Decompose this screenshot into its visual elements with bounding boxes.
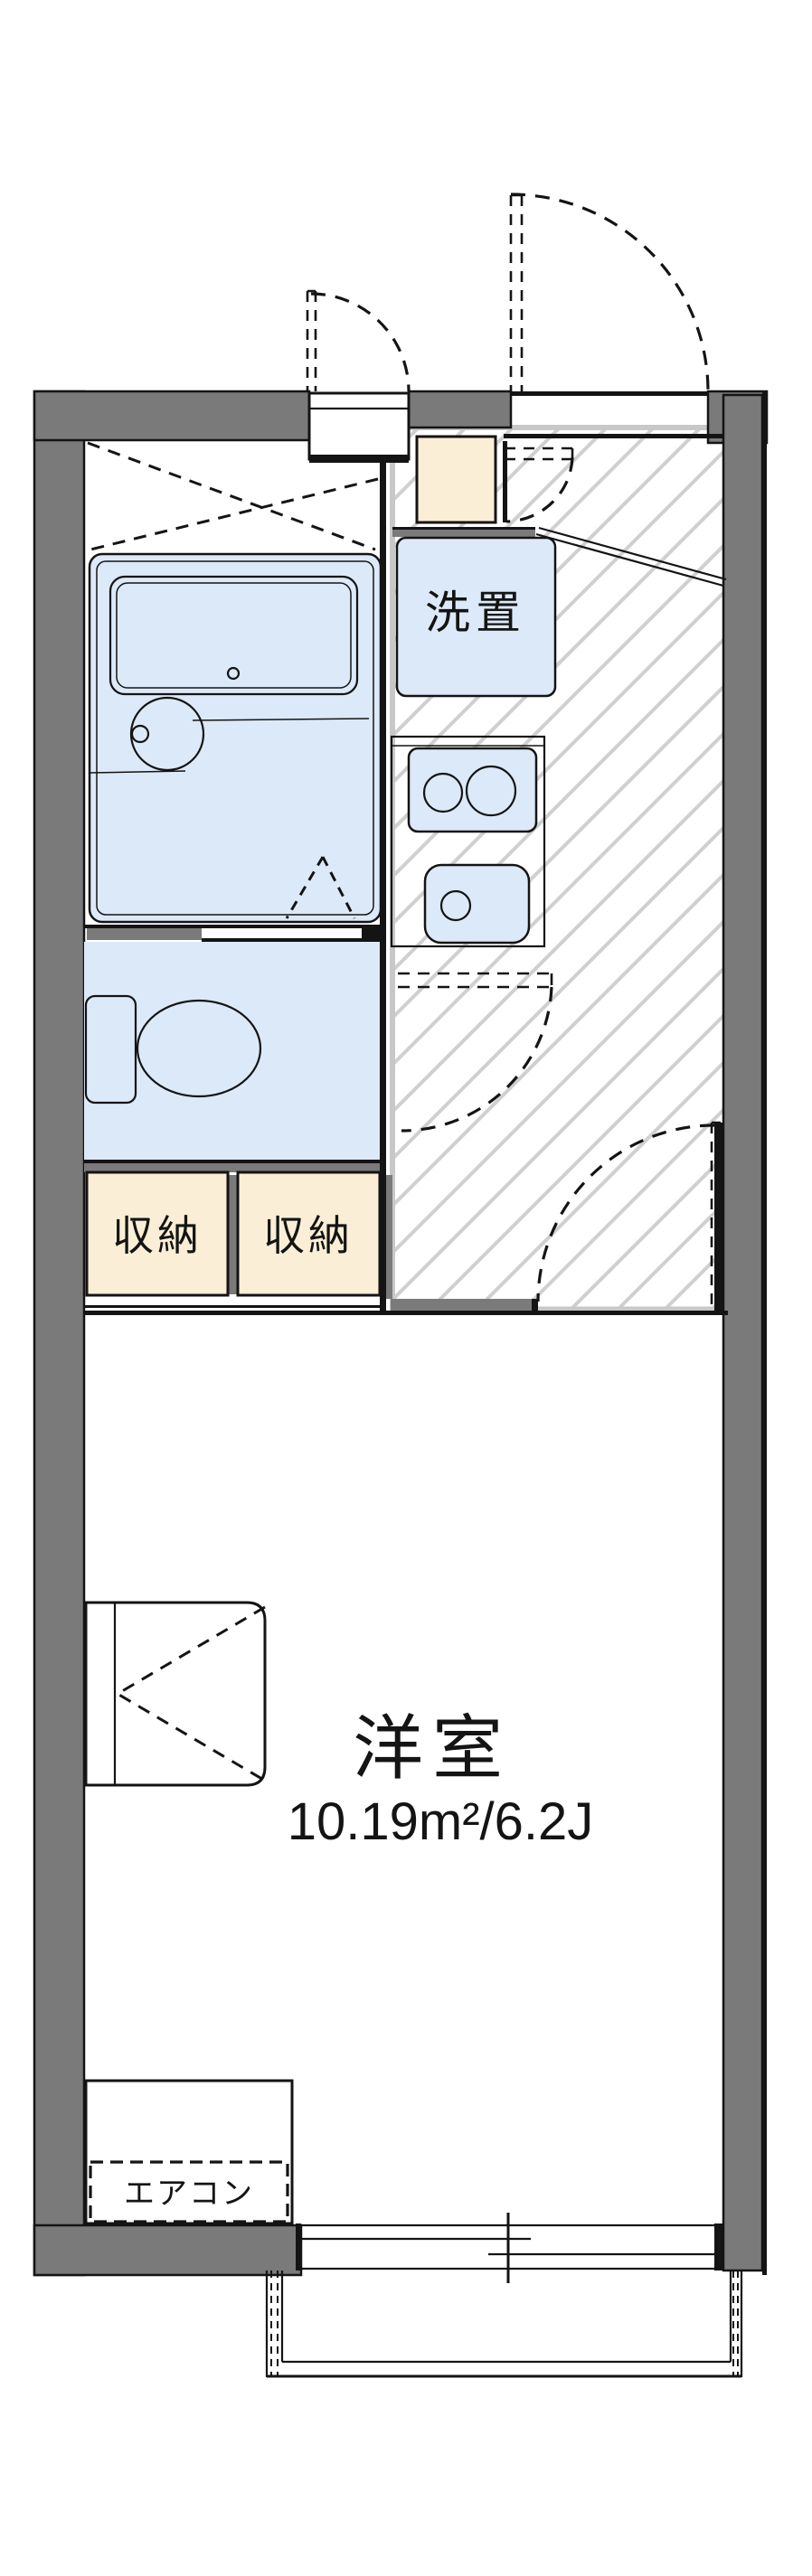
kitchen-sink bbox=[425, 865, 529, 943]
laundry-label: 洗置 bbox=[425, 590, 526, 635]
wall-top-left bbox=[34, 391, 309, 440]
wall-left-rooms-hallway bbox=[380, 459, 386, 1315]
closet-fold-symbol bbox=[86, 1603, 265, 1785]
balcony bbox=[267, 2270, 741, 2377]
toilet-storage-wall bbox=[84, 1160, 386, 1172]
bath-toilet-wall bbox=[84, 925, 386, 942]
room-name-label: 洋室 bbox=[353, 1713, 512, 1783]
floorplan-drawing bbox=[0, 0, 812, 2576]
balcony-partition-right bbox=[731, 2270, 741, 2377]
storage-left-label: 収納 bbox=[112, 1215, 203, 1256]
stove bbox=[409, 748, 536, 832]
genkan-edge-line bbox=[504, 434, 723, 438]
wall-left bbox=[34, 391, 84, 2275]
wall-bottom bbox=[34, 2225, 301, 2275]
floorplan: 洗置 収納 収納 洋室 10.19m²/6.2J エアコン bbox=[0, 0, 812, 2576]
meter-box-door bbox=[307, 291, 409, 391]
aircon-label: エアコン bbox=[124, 2178, 254, 2209]
room-door-post bbox=[714, 1123, 723, 1315]
wall-top-mid bbox=[409, 391, 511, 428]
wall-right-outer-edge bbox=[762, 391, 767, 2275]
shoe-storage bbox=[417, 437, 507, 522]
balcony-partition-left bbox=[267, 2270, 282, 2377]
wall-right bbox=[723, 395, 762, 2270]
storage-right-label: 収納 bbox=[263, 1215, 354, 1256]
balcony-window bbox=[296, 2213, 723, 2283]
room-area-label: 10.19m²/6.2J bbox=[288, 1796, 594, 1848]
bathroom-unit bbox=[90, 554, 381, 922]
toilet-room bbox=[84, 942, 380, 1161]
storage-door-rail bbox=[84, 1305, 380, 1308]
meter-box-niche bbox=[309, 393, 409, 463]
entry-threshold-line bbox=[511, 391, 708, 396]
entry-door bbox=[511, 194, 708, 391]
